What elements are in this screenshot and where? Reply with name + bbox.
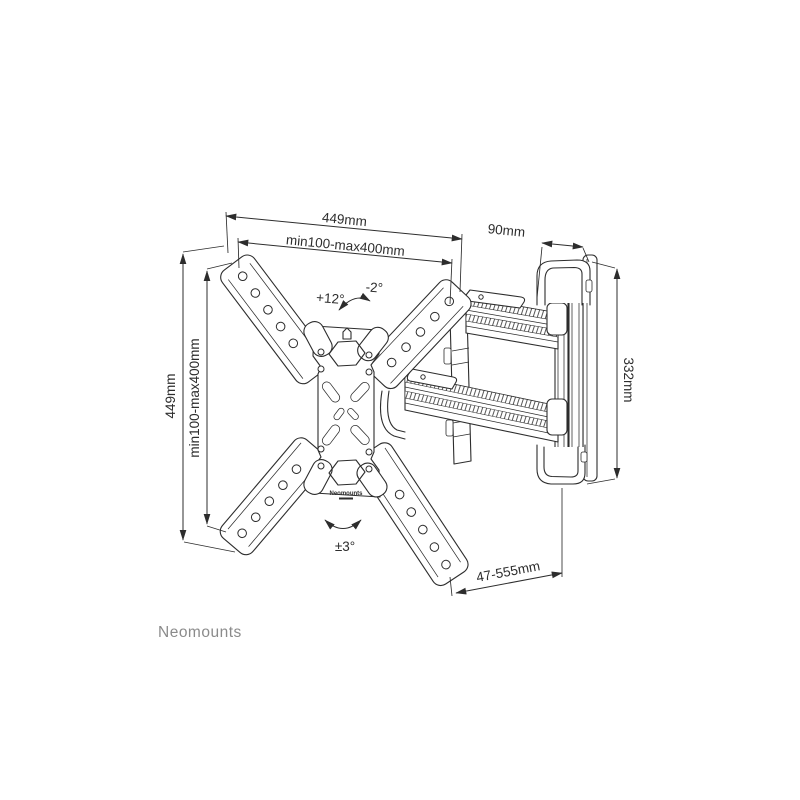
label-bracket-depth: 90mm: [487, 221, 526, 240]
annotation-tilt: +12° -2°: [316, 279, 384, 310]
label-tilt-down: -2°: [365, 279, 383, 295]
page: Neomounts 449mm min100-max400mm 90mm: [0, 0, 800, 800]
dimension-height-vesa: min100-max400mm: [187, 263, 232, 532]
label-extension-range: 47-555mm: [475, 558, 541, 585]
vesa-arm-top-left: [217, 251, 333, 387]
dimension-extension-range: 47-555mm: [450, 488, 562, 596]
label-bracket-height: 332mm: [621, 357, 636, 402]
wall-plate-channel-rear: [569, 294, 583, 464]
plate-logo-underline: [339, 498, 353, 500]
brand-logo-text: Neomounts: [158, 624, 242, 641]
label-width-vesa: min100-max400mm: [285, 232, 405, 259]
technical-drawing: Neomounts 449mm min100-max400mm 90mm: [0, 0, 800, 800]
plate-logo-text: Neomounts: [330, 491, 364, 497]
lower-arm-rail: [405, 369, 567, 442]
label-rotation-level: ±3°: [335, 539, 355, 554]
upper-rail-clamp: [547, 303, 567, 335]
label-height-total: 449mm: [163, 373, 178, 418]
elbow-link: [381, 391, 406, 439]
vesa-arm-bottom-left: [217, 434, 331, 558]
label-height-vesa: min100-max400mm: [187, 338, 202, 457]
label-tilt-up: +12°: [316, 290, 345, 307]
annotation-rotation: ±3°: [325, 520, 361, 554]
lower-rail-clamp: [547, 399, 567, 435]
